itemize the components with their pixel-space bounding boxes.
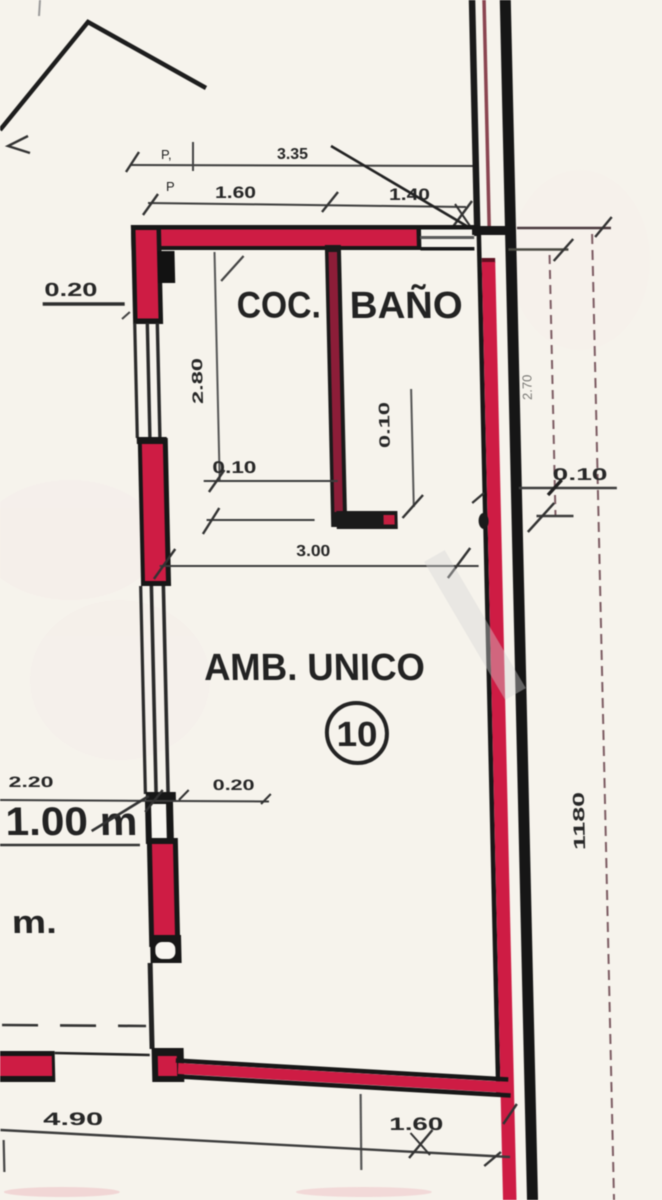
svg-text:2.20: 2.20 bbox=[8, 774, 53, 791]
svg-text:1180: 1180 bbox=[571, 792, 589, 850]
svg-text:2.80: 2.80 bbox=[189, 358, 207, 404]
svg-text:0.20: 0.20 bbox=[212, 777, 254, 794]
svg-text:m.: m. bbox=[11, 904, 57, 940]
svg-text:3.00: 3.00 bbox=[296, 543, 330, 560]
svg-text:0.10: 0.10 bbox=[212, 458, 256, 477]
svg-text:4.90: 4.90 bbox=[43, 1109, 103, 1129]
svg-text:COC.: COC. bbox=[236, 285, 321, 326]
svg-text:BAÑO: BAÑO bbox=[349, 283, 463, 327]
svg-text:1.60: 1.60 bbox=[215, 183, 256, 202]
svg-text:10: 10 bbox=[336, 715, 378, 754]
svg-text:P,: P, bbox=[161, 147, 172, 162]
svg-text:1.60: 1.60 bbox=[389, 1114, 443, 1134]
svg-text:0.10: 0.10 bbox=[376, 402, 394, 448]
svg-text:3.35: 3.35 bbox=[277, 146, 308, 163]
svg-text:1.00 m: 1.00 m bbox=[5, 800, 138, 844]
svg-text:AMB. UNICO: AMB. UNICO bbox=[203, 647, 425, 689]
svg-text:0.20: 0.20 bbox=[44, 280, 97, 301]
svg-text:2.70: 2.70 bbox=[519, 375, 535, 400]
svg-text:P: P bbox=[166, 179, 175, 194]
